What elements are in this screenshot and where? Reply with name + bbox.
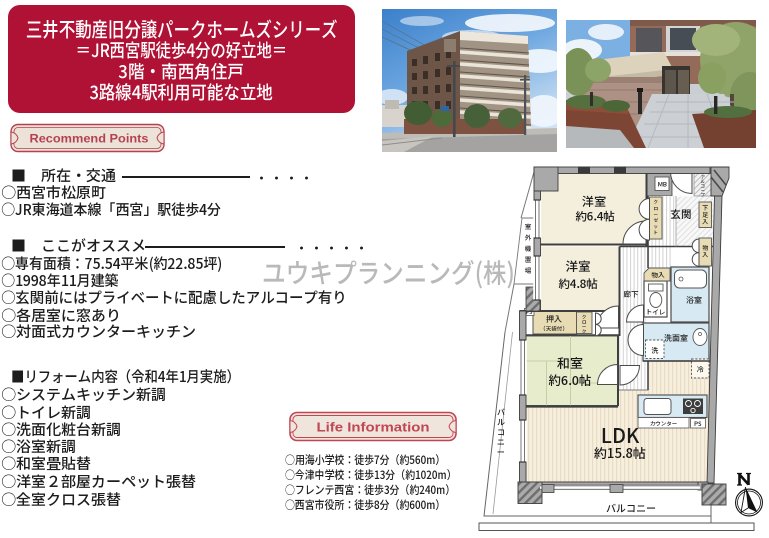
svg-text:玄関: 玄関 [671, 207, 692, 222]
svg-text:場: 場 [525, 265, 532, 275]
svg-text:PS: PS [694, 419, 702, 428]
svg-text:約4.8帖: 約4.8帖 [558, 276, 598, 292]
svg-text:カウンター: カウンター [650, 420, 678, 428]
svg-text:ー: ー [497, 447, 505, 458]
svg-text:MB: MB [657, 180, 666, 189]
svg-text:洗: 洗 [651, 346, 658, 356]
svg-text:機: 機 [525, 243, 532, 253]
svg-text:ク: ク [582, 329, 587, 335]
svg-text:（天袋付）: （天袋付） [540, 325, 568, 333]
svg-text:洋室: 洋室 [582, 193, 606, 210]
svg-text:約6.0帖: 約6.0帖 [548, 370, 592, 389]
svg-text:入: 入 [701, 217, 708, 226]
svg-text:ク: ク [653, 200, 658, 206]
svg-text:トイレ: トイレ [646, 307, 666, 317]
svg-text:廊下: 廊下 [624, 289, 639, 300]
svg-text:物入: 物入 [651, 270, 665, 280]
svg-text:ゼ: ゼ [653, 217, 658, 224]
svg-text:約6.4帖: 約6.4帖 [575, 209, 615, 225]
svg-text:冷: 冷 [696, 365, 704, 375]
svg-text:ト: ト [653, 230, 658, 236]
svg-text:洋室: 洋室 [565, 256, 590, 275]
svg-text:浴室: 浴室 [686, 295, 702, 306]
svg-text:プ: プ [701, 193, 706, 199]
svg-text:約15.8帖: 約15.8帖 [594, 443, 646, 462]
svg-text:洗面室: 洗面室 [664, 333, 688, 344]
svg-text:置: 置 [525, 254, 532, 264]
svg-text:室: 室 [525, 221, 532, 231]
svg-text:バルコニー: バルコニー [606, 500, 656, 515]
svg-text:押入: 押入 [546, 314, 562, 325]
svg-text:入: 入 [701, 250, 708, 259]
svg-text:外: 外 [525, 232, 532, 242]
